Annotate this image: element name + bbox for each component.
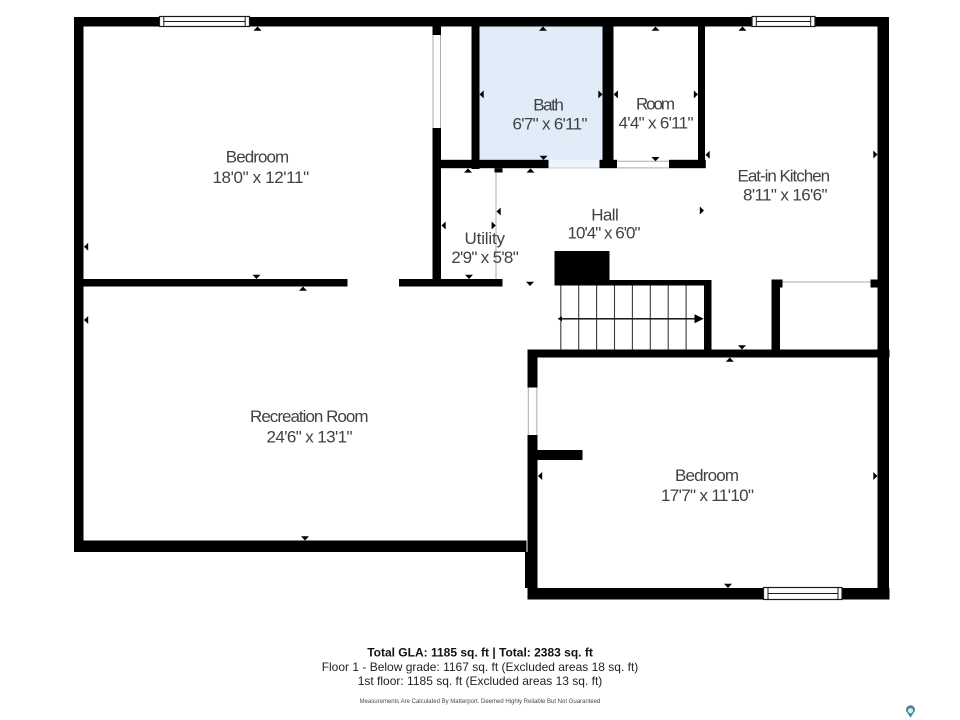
svg-text:Bath: Bath xyxy=(533,95,564,114)
svg-text:Measurements Are Calculated By: Measurements Are Calculated By Matterpor… xyxy=(360,699,601,705)
svg-text:18'0" x 12'11": 18'0" x 12'11" xyxy=(212,168,309,187)
svg-text:Eat-in Kitchen: Eat-in Kitchen xyxy=(738,166,831,185)
svg-text:Hall: Hall xyxy=(591,206,619,225)
svg-text:4'4" x 6'11": 4'4" x 6'11" xyxy=(619,114,694,133)
svg-text:8'11" x 16'6": 8'11" x 16'6" xyxy=(743,186,828,205)
svg-text:6'7" x 6'11": 6'7" x 6'11" xyxy=(513,115,588,134)
svg-text:17'7" x 11'10": 17'7" x 11'10" xyxy=(661,486,754,505)
svg-text:1st floor: 1185 sq. ft (Exclud: 1st floor: 1185 sq. ft (Excluded areas 1… xyxy=(358,674,603,688)
svg-text:Bedroom: Bedroom xyxy=(675,466,739,485)
svg-text:Room: Room xyxy=(636,95,675,114)
svg-text:Utility: Utility xyxy=(465,229,506,248)
svg-text:Floor 1 - Below grade: 1167 sq: Floor 1 - Below grade: 1167 sq. ft (Excl… xyxy=(322,660,639,674)
svg-text:Total GLA: 1185 sq. ft | Total: Total GLA: 1185 sq. ft | Total: 2383 sq.… xyxy=(367,646,593,660)
svg-text:10'4" x 6'0": 10'4" x 6'0" xyxy=(568,224,641,243)
svg-text:24'6" x 13'1": 24'6" x 13'1" xyxy=(267,428,353,447)
svg-text:2'9" x 5'8": 2'9" x 5'8" xyxy=(451,248,519,267)
svg-text:Bedroom: Bedroom xyxy=(226,148,289,167)
svg-text:Recreation Room: Recreation Room xyxy=(250,407,369,426)
